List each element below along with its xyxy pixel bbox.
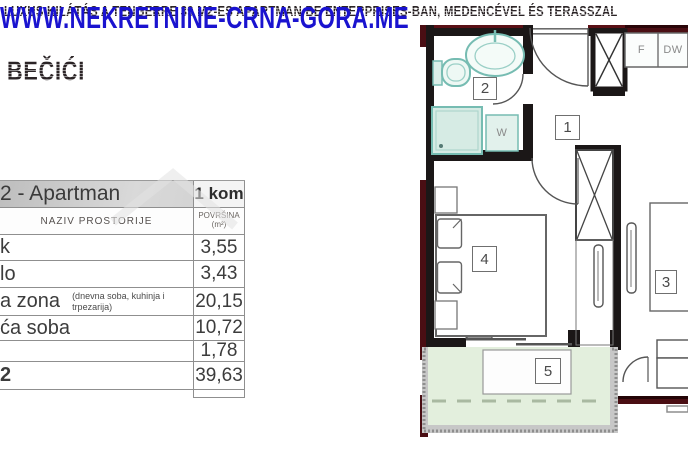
washer-label: W	[486, 115, 518, 151]
unit-count: 1 kom	[193, 181, 245, 207]
table-row: a zona (dnevna soba, kuhinja i trpezarij…	[0, 287, 245, 315]
site-watermark: WWW.NEKRETNINE-CRNA-GORA.ME	[0, 0, 495, 36]
sink-icon	[466, 30, 524, 76]
room-name: lo	[0, 261, 193, 287]
bedroom-door-arc	[532, 158, 578, 204]
room-area: 1,78	[193, 341, 245, 361]
total-area: 39,63	[193, 362, 245, 389]
apartment-title: 2 - Apartman	[0, 181, 193, 207]
column-header-area: POVRŠINA (m²)	[193, 208, 245, 234]
room-name	[0, 341, 193, 361]
wardrobe-entry	[593, 31, 625, 89]
room-area: 20,15	[193, 288, 245, 315]
side-door-arc	[623, 357, 648, 382]
entrance-door-arc	[530, 28, 588, 86]
room-area: 3,55	[193, 235, 245, 260]
room-label-hall: 1	[555, 115, 580, 140]
room-name: a zona (dnevna soba, kuhinja i trpezarij…	[0, 288, 193, 315]
table-row: lo 3,43	[0, 260, 245, 287]
fridge-label: F	[625, 33, 658, 67]
table-header-row: 2 - Apartman 1 kom	[0, 180, 245, 207]
table-column-stub	[193, 390, 245, 398]
room-label-terrace: 5	[535, 358, 561, 384]
room-label-bathroom: 2	[473, 77, 497, 100]
column-header-name: NAZIV PROSTORIJE	[0, 208, 193, 234]
toilet-icon	[433, 59, 470, 86]
terrace	[422, 347, 618, 433]
floor-plan: 1 2 3 4 5 W F DW	[420, 25, 688, 437]
table-total-row: 2 39,63	[0, 361, 245, 390]
room-area: 3,43	[193, 261, 245, 287]
location-title-text: BEČIĆI	[7, 56, 85, 86]
room-label-bedroom: 4	[472, 246, 497, 272]
room-area: 10,72	[193, 316, 245, 340]
table-row: ća soba 10,72	[0, 315, 245, 340]
shower-icon	[432, 107, 482, 154]
total-name: 2	[0, 362, 193, 389]
area-unit: (m²)	[212, 221, 227, 230]
table-subheader-row: NAZIV PROSTORIJE POVRŠINA (m²)	[0, 207, 245, 234]
room-name: k	[0, 235, 193, 260]
bathroom-door-arc	[493, 74, 523, 104]
room-name-main: a zona	[0, 290, 60, 313]
adjacent-room-outline	[650, 203, 688, 412]
room-name: ća soba	[0, 316, 193, 340]
location-title: BEČIĆI	[7, 56, 85, 87]
area-table: 2 - Apartman 1 kom NAZIV PROSTORIJE POVR…	[0, 180, 245, 390]
table-row: 1,78	[0, 340, 245, 361]
table-row: k 3,55	[0, 234, 245, 260]
listing-image: LUXUS KILÁTÁS A TENGERRE 39 M2-ES APARTM…	[0, 0, 688, 460]
room-name-note: (dnevna soba, kuhinja i trpezarija)	[72, 291, 172, 313]
wardrobe-corridor	[576, 150, 613, 345]
dishwasher-label: DW	[658, 33, 688, 67]
room3-radiator	[627, 223, 636, 293]
room-label-room3: 3	[655, 270, 677, 294]
